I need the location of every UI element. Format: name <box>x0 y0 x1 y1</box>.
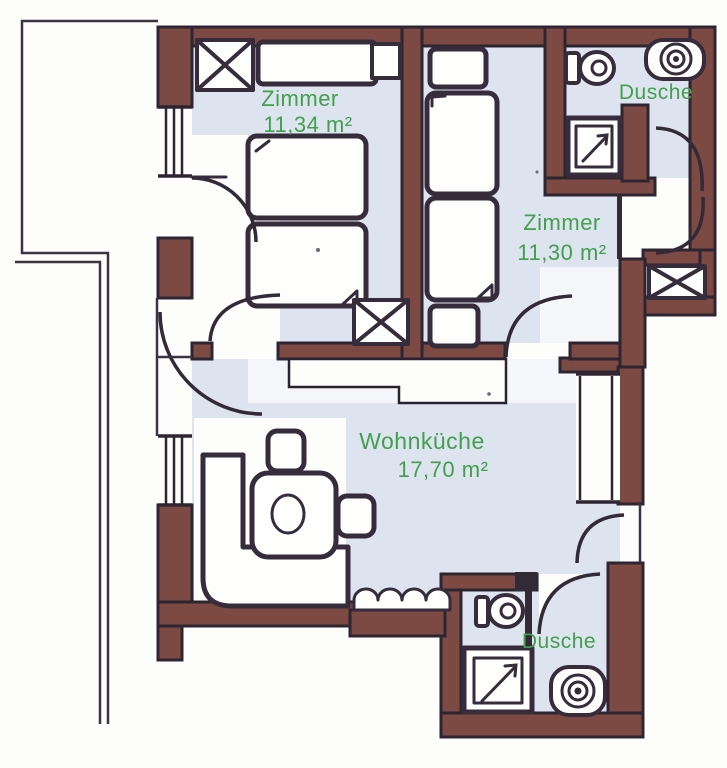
washbasin-icon <box>551 667 605 715</box>
floor-plan-drawing: Zimmer 11,34 m² Zimmer 11,30 m² Wohnküch… <box>0 0 727 768</box>
wall-right-lower <box>608 563 643 737</box>
scan-white-patch <box>540 267 618 343</box>
wall-beside-window <box>618 367 643 504</box>
chair-icon <box>338 496 374 536</box>
wohnkueche-label: Wohnküche <box>359 428 485 454</box>
shower-icon <box>464 648 532 712</box>
wardrobe-cross-box-icon <box>354 300 408 344</box>
toilet-icon <box>566 52 614 84</box>
nightstand-icon <box>372 44 400 78</box>
dusche-bottom-label: Dusche <box>522 630 596 653</box>
zimmer2-label: Zimmer <box>523 210 601 235</box>
zimmer1-label: Zimmer <box>261 86 339 111</box>
toilet-icon <box>476 595 523 627</box>
wall-bottom-mid <box>350 610 445 636</box>
wall-bottom-stub <box>158 626 182 660</box>
zimmer2-area: 11,30 m² <box>517 240 606 265</box>
nightstand-icon <box>430 306 478 346</box>
wall-left-mid <box>158 238 192 298</box>
wall-left-top <box>158 27 192 107</box>
shower-icon <box>568 118 620 175</box>
bed-icon <box>427 198 497 300</box>
dining-table-icon <box>252 473 336 557</box>
zimmer1-area: 11,34 m² <box>263 112 352 137</box>
wardrobe-cross-box-icon <box>649 266 705 298</box>
washbasin-icon <box>646 40 704 79</box>
dusche-top-label: Dusche <box>619 81 693 104</box>
wall-dusche2-bottom <box>441 713 643 737</box>
wardrobe-cross-box-icon <box>197 40 253 90</box>
bed-icon <box>248 136 366 218</box>
terrace-outline <box>15 21 158 724</box>
wall-junction-block <box>515 572 537 590</box>
bed-icon <box>427 93 497 194</box>
wall-zimmer2-bottom-right <box>570 343 620 359</box>
wall-door-stub <box>192 343 212 359</box>
bed-icon <box>248 224 366 306</box>
nightstand-icon <box>430 49 486 87</box>
vestibule-divider-line <box>617 195 622 259</box>
wall-shower-nook <box>622 105 648 181</box>
wall-right-mid <box>620 259 645 367</box>
dresser-icon <box>258 42 376 84</box>
window-icon <box>576 374 620 502</box>
wall-left-bottom <box>158 505 192 604</box>
chair-icon <box>268 431 304 471</box>
wohnkueche-area: 17,70 m² <box>398 457 489 482</box>
window-icon <box>158 436 192 505</box>
window-icon <box>158 107 192 176</box>
floor-plan-page: Zimmer 11,34 m² Zimmer 11,30 m² Wohnküch… <box>0 0 727 768</box>
wall-dusche1-left <box>545 27 565 195</box>
